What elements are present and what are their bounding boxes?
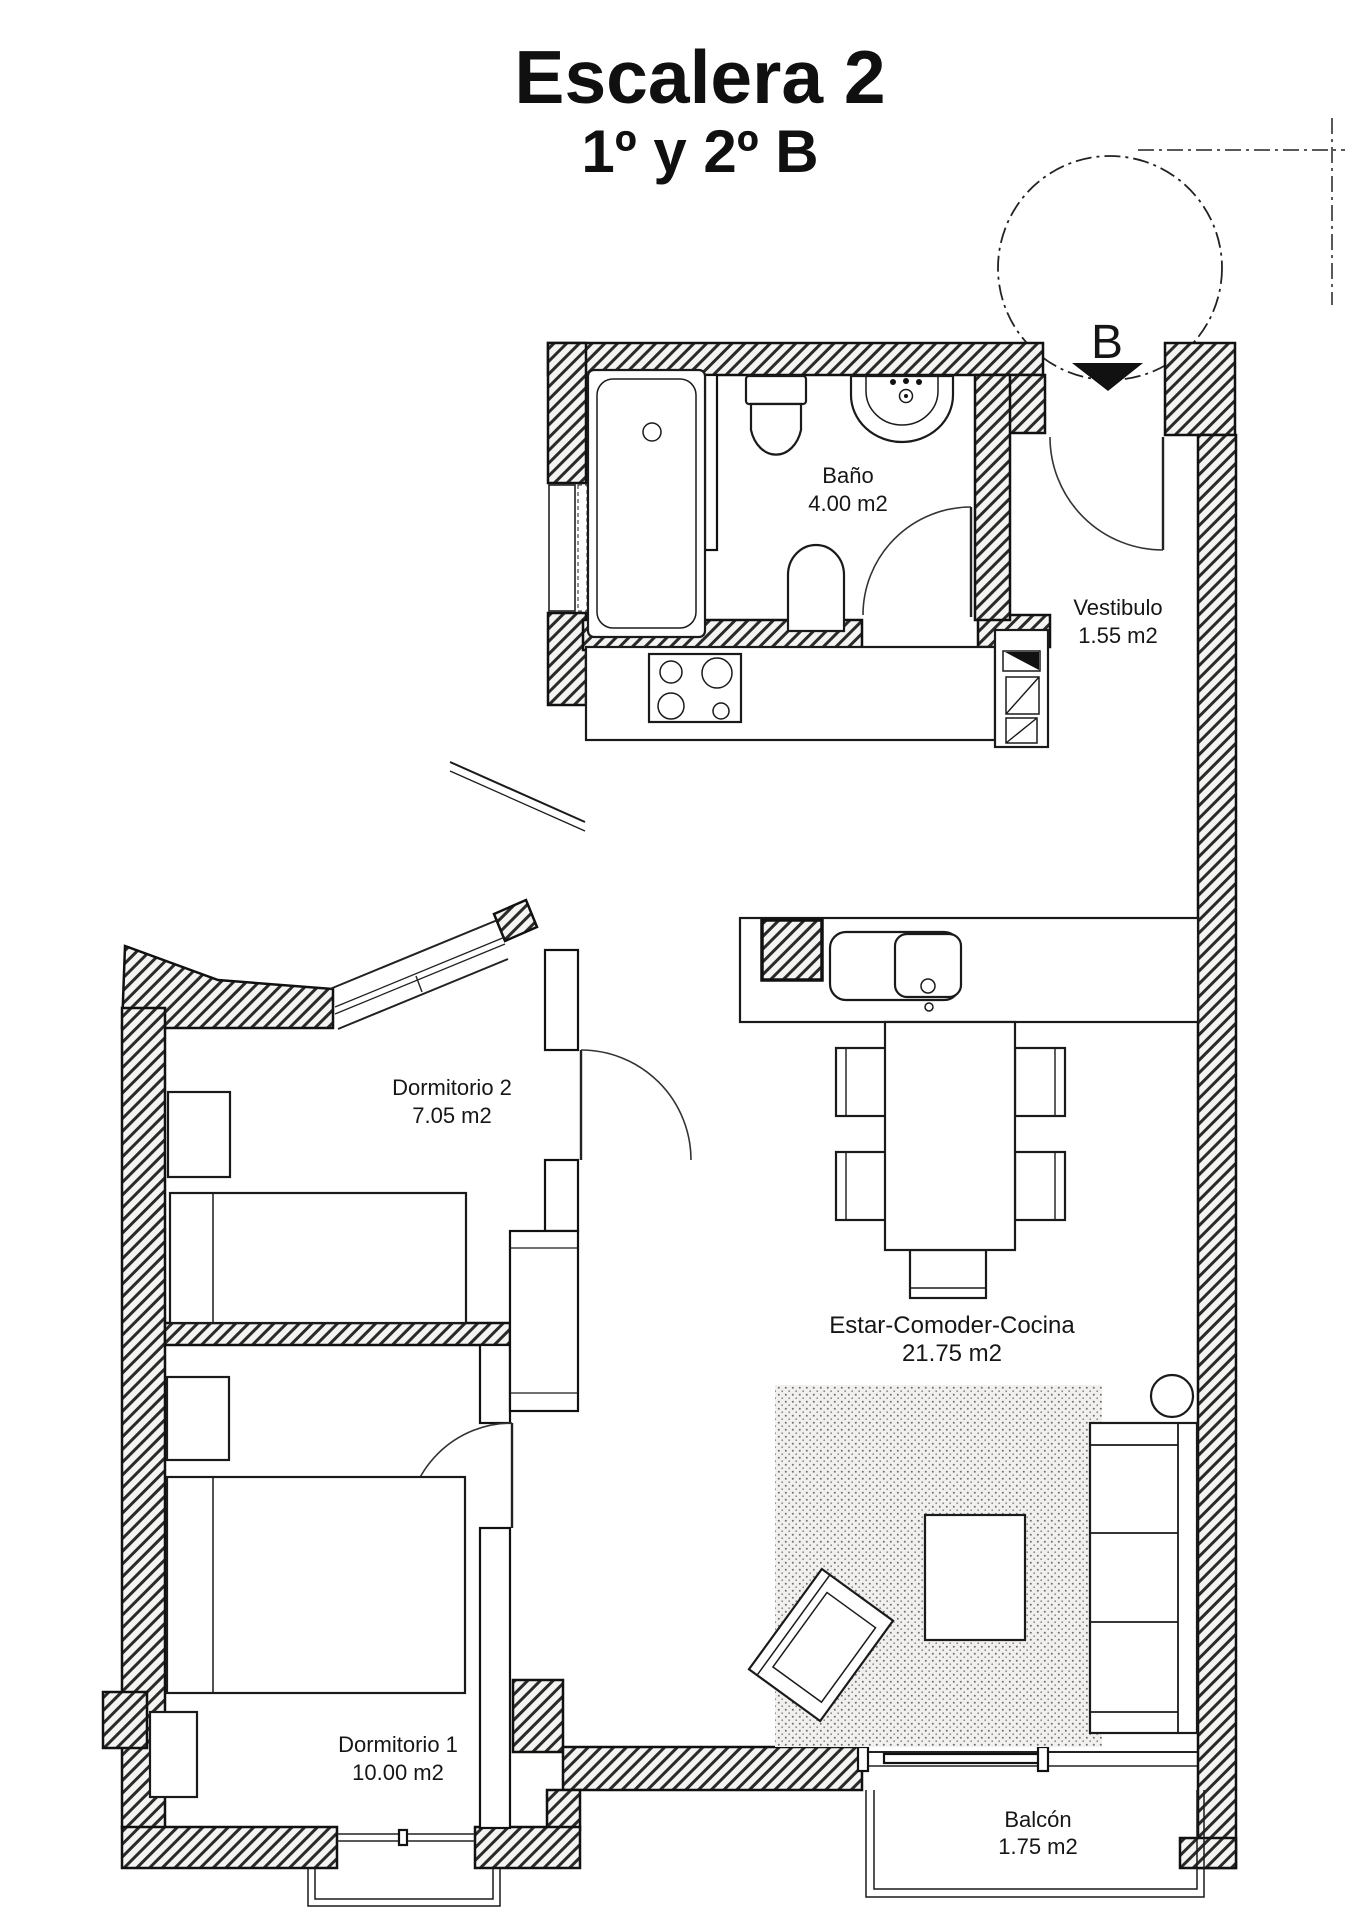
label-bano-area: 4.00 m2 bbox=[808, 491, 888, 516]
coffee-table bbox=[925, 1515, 1025, 1640]
d2-nightstand bbox=[168, 1092, 230, 1177]
toilet bbox=[746, 376, 806, 455]
bidet bbox=[788, 545, 844, 631]
wall-bath-left-upper bbox=[548, 343, 586, 483]
label-dormitorio2-area: 7.05 m2 bbox=[412, 1103, 492, 1128]
wall-bottom-a bbox=[122, 1827, 337, 1868]
wall-right bbox=[1198, 435, 1236, 1868]
label-vestibulo-area: 1.55 m2 bbox=[1078, 623, 1158, 648]
wall-living-west-block bbox=[513, 1680, 563, 1752]
wall-bath-right bbox=[975, 375, 1010, 620]
label-dormitorio1: Dormitorio 1 bbox=[338, 1732, 458, 1757]
wall-bottom-b bbox=[475, 1827, 580, 1868]
wall-d2-right-upper bbox=[545, 950, 578, 1050]
kitchen-counter-top bbox=[586, 647, 995, 740]
floor-plan-page: Escalera 2 1º y 2º B B bbox=[0, 0, 1357, 1920]
kitchen-column bbox=[762, 920, 822, 980]
label-balcon: Balcón bbox=[1004, 1807, 1071, 1832]
label-estar: Estar-Comoder-Cocina bbox=[829, 1312, 1075, 1339]
plan-subtitle: 1º y 2º B bbox=[581, 118, 818, 185]
bathtub bbox=[588, 370, 705, 637]
wall-left-step bbox=[103, 1692, 147, 1748]
wall-d1-right-lower bbox=[480, 1528, 510, 1828]
wall-living-south bbox=[563, 1747, 862, 1790]
side-table bbox=[1151, 1375, 1193, 1417]
wall-tub-separator bbox=[705, 375, 717, 550]
label-dormitorio2: Dormitorio 2 bbox=[392, 1075, 512, 1100]
label-vestibulo: Vestibulo bbox=[1073, 595, 1162, 620]
stove bbox=[649, 654, 741, 722]
wall-d2-right-lower bbox=[545, 1160, 578, 1231]
wall-d1-right-upper bbox=[480, 1345, 510, 1423]
entrance-label: B bbox=[1091, 316, 1123, 369]
d1-bed bbox=[167, 1477, 465, 1693]
wall-bedroom-divider bbox=[165, 1323, 510, 1345]
wall-entry-jamb-right bbox=[1165, 343, 1235, 435]
floor-plan-drawing: Escalera 2 1º y 2º B B bbox=[0, 0, 1357, 1920]
label-balcon-area: 1.75 m2 bbox=[998, 1834, 1078, 1859]
wall-living-south-connector bbox=[547, 1790, 580, 1830]
label-dormitorio1-area: 10.00 m2 bbox=[352, 1760, 444, 1785]
d1-nightstand-top bbox=[167, 1377, 229, 1460]
sofa bbox=[1090, 1423, 1197, 1733]
label-bano: Baño bbox=[822, 463, 873, 488]
d2-bed bbox=[170, 1193, 466, 1323]
wall-right-step bbox=[1180, 1838, 1236, 1868]
label-estar-area: 21.75 m2 bbox=[902, 1340, 1002, 1367]
fridge-column bbox=[995, 630, 1048, 747]
plan-title: Escalera 2 bbox=[514, 35, 885, 119]
dining-table bbox=[885, 1022, 1015, 1250]
kitchen-sink bbox=[830, 932, 961, 1011]
d1-nightstand-bottom bbox=[150, 1712, 197, 1797]
balcony-door-leaf bbox=[884, 1754, 1040, 1763]
closet bbox=[510, 1231, 578, 1411]
wall-bath-left-lower bbox=[548, 613, 586, 705]
